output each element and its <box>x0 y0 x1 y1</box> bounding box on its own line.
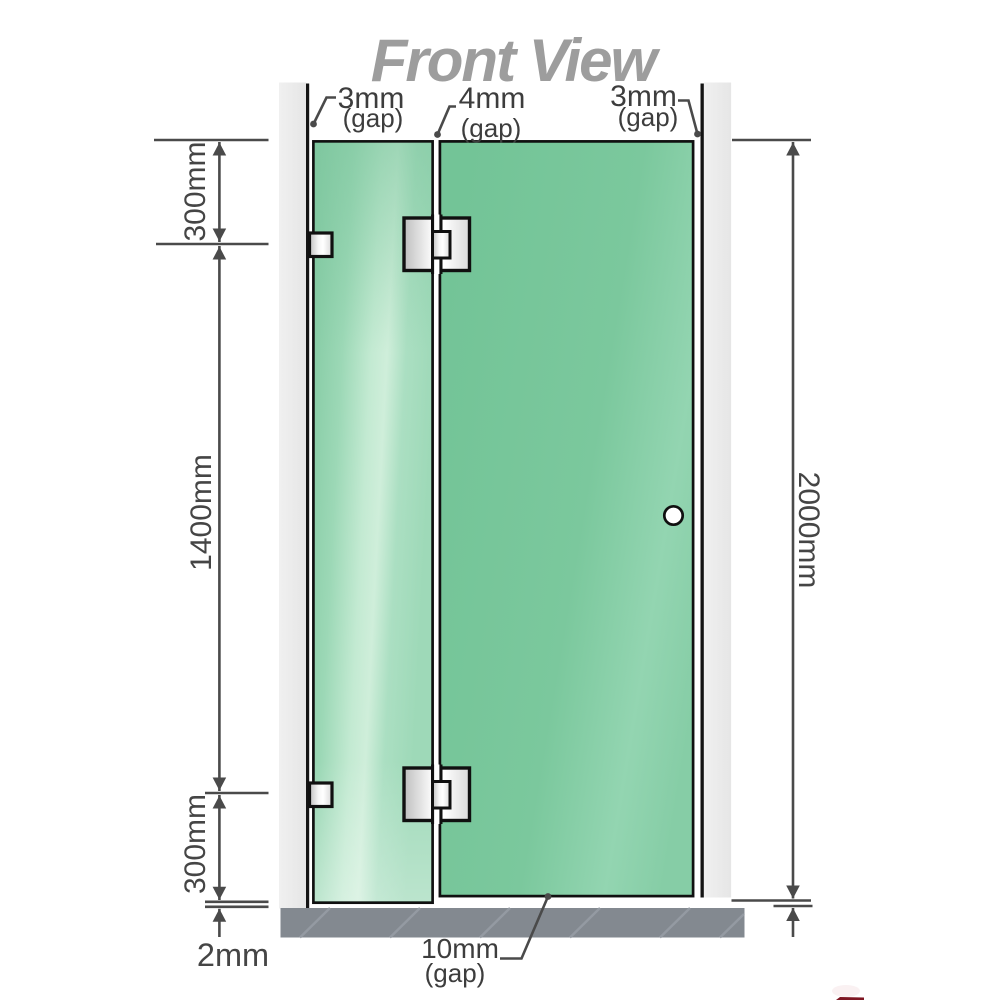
svg-text:(gap): (gap) <box>618 102 679 132</box>
svg-text:4mm: 4mm <box>459 82 526 115</box>
svg-text:300mm: 300mm <box>179 794 212 894</box>
svg-text:(gap): (gap) <box>461 113 522 143</box>
svg-text:(gap): (gap) <box>343 103 404 133</box>
svg-text:2mm: 2mm <box>197 937 269 973</box>
svg-text:1400mm: 1400mm <box>185 454 218 571</box>
svg-text:2000mm: 2000mm <box>792 472 825 589</box>
svg-text:300mm: 300mm <box>179 141 212 241</box>
svg-text:(gap): (gap) <box>425 958 486 988</box>
